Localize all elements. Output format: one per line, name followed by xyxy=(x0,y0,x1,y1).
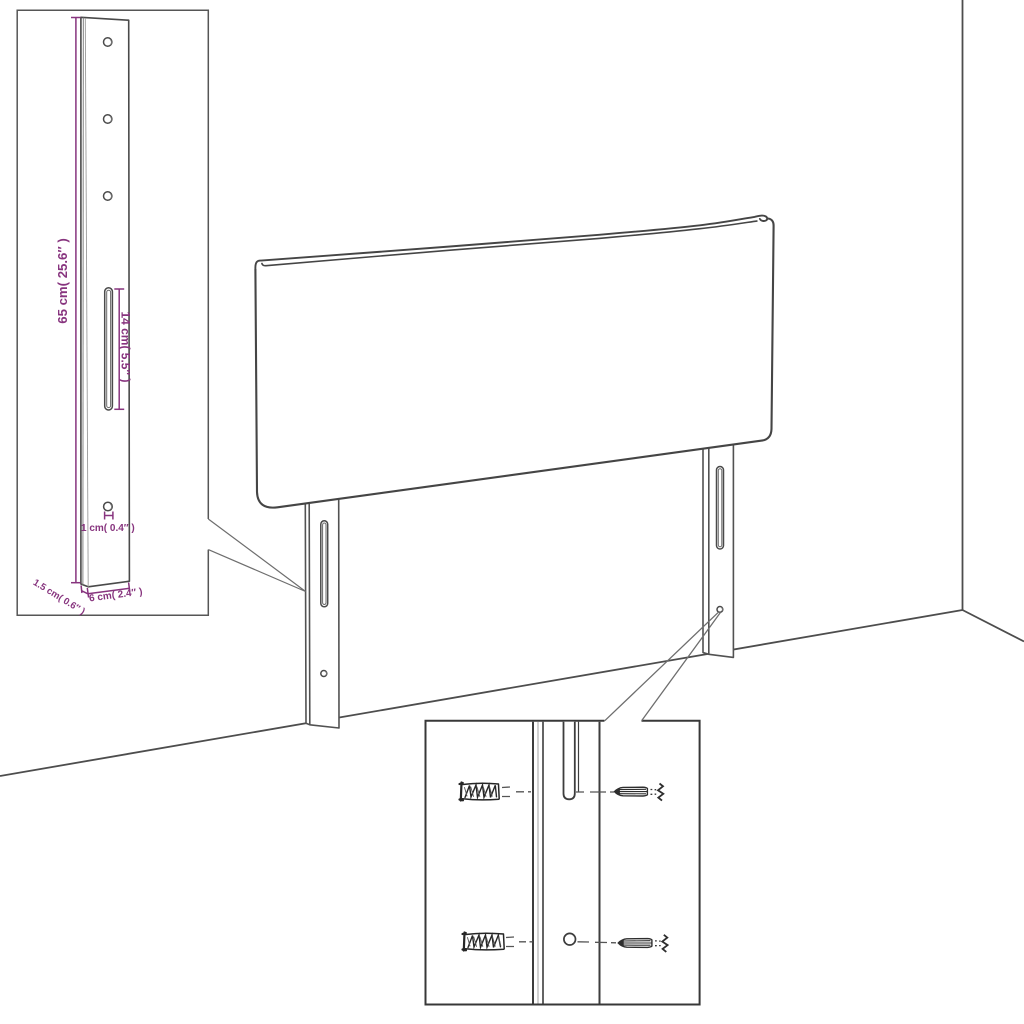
svg-text:65 cm( 25.6″ ): 65 cm( 25.6″ ) xyxy=(55,238,70,324)
svg-text:1 cm( 0.4″ ): 1 cm( 0.4″ ) xyxy=(81,523,135,534)
svg-text:14 cm( 5.5″ ): 14 cm( 5.5″ ) xyxy=(119,311,133,382)
